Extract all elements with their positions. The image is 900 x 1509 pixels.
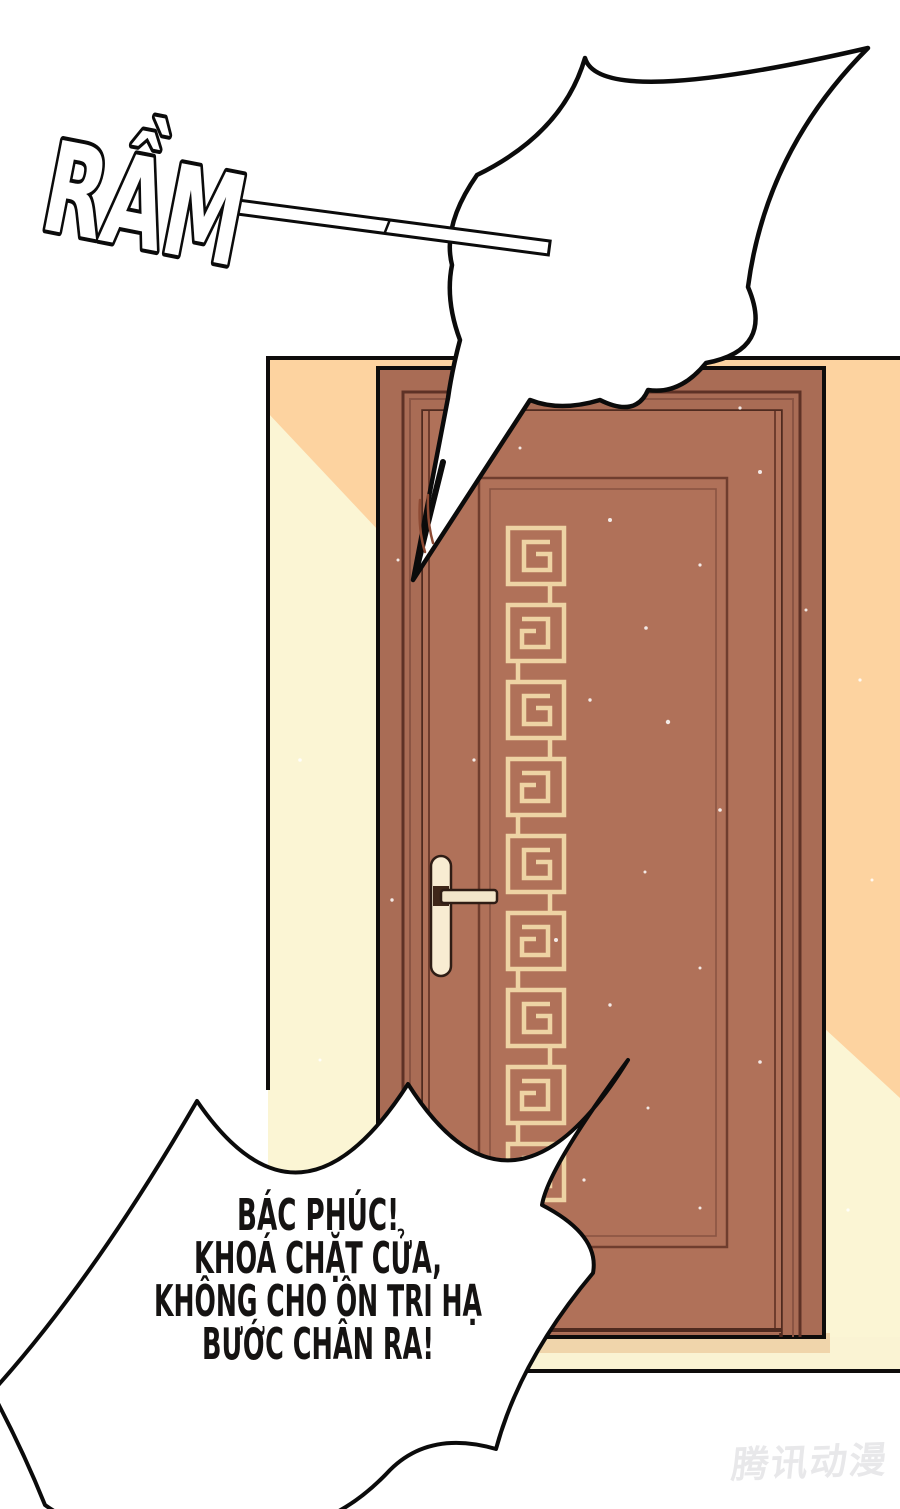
handle-plate (431, 856, 451, 976)
dialogue-line-4: BƯỚC CHÂN RA! (202, 1317, 434, 1370)
handle-lever (441, 890, 497, 903)
comic-page: RẦM BÁC PHÚC! KHOÁ CHẶT CỬA, KHÔNG CHO Ô… (0, 0, 900, 1509)
panel-artwork: RẦM BÁC PHÚC! KHOÁ CHẶT CỬA, KHÔNG CHO Ô… (0, 0, 900, 1509)
publisher-watermark: 腾讯动漫 (730, 1441, 891, 1483)
panel-border-left (266, 356, 270, 1090)
slam-sfx-text: RẦM (32, 98, 259, 295)
